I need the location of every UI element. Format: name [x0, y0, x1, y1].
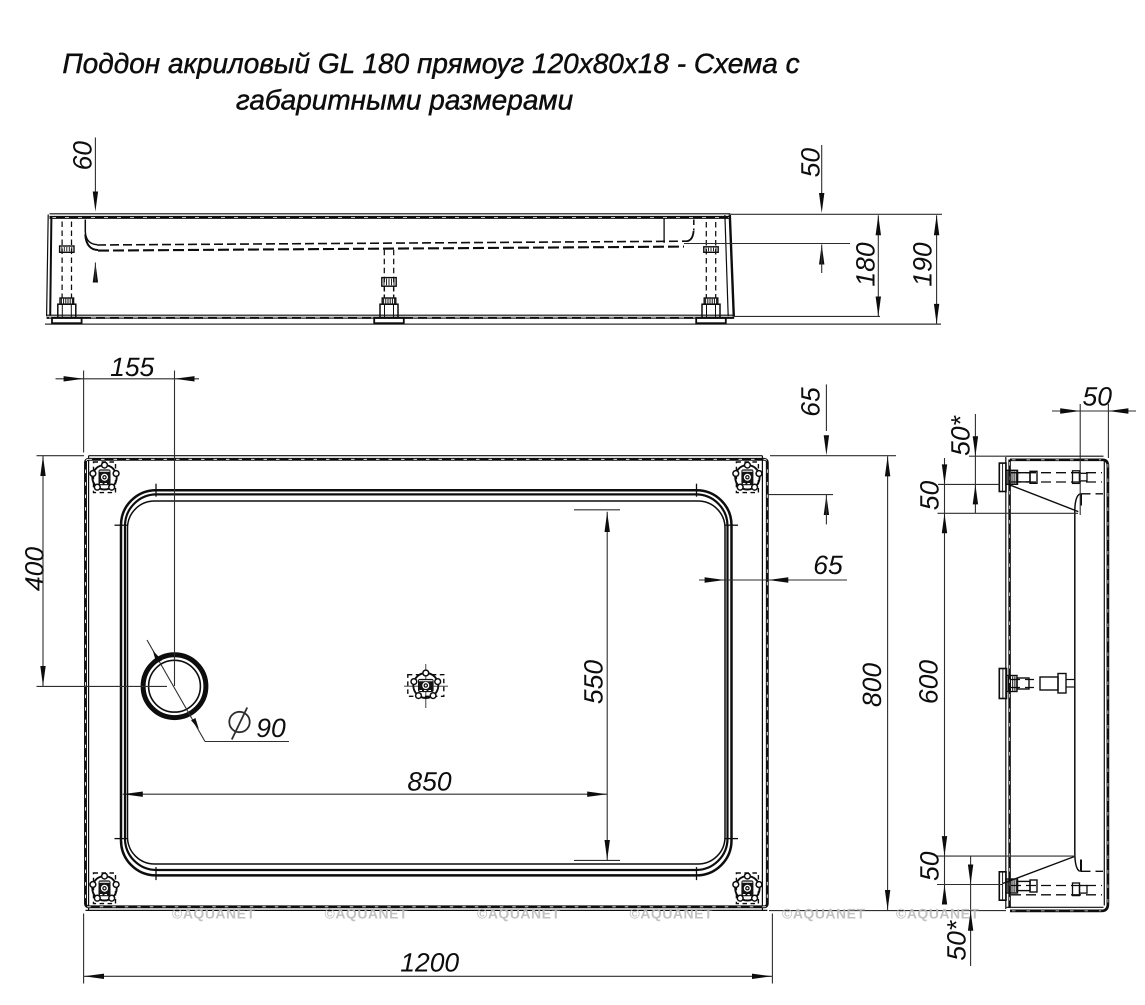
svg-text:Поддон акриловый GL 180 прямо: Поддон акриловый GL 180 прямоуг 120х80х1… — [62, 48, 799, 79]
svg-text:50: 50 — [796, 148, 826, 178]
svg-text:50*: 50* — [942, 919, 972, 960]
svg-text:550: 550 — [579, 660, 609, 704]
svg-text:65: 65 — [813, 550, 843, 580]
svg-text:1200: 1200 — [400, 948, 459, 978]
svg-text:габаритными размерами: габаритными размерами — [236, 85, 574, 116]
svg-text:190: 190 — [908, 242, 938, 286]
svg-text:©AQUANET: ©AQUANET — [896, 906, 980, 922]
svg-text:400: 400 — [20, 547, 50, 591]
svg-text:©AQUANET: ©AQUANET — [325, 906, 409, 922]
svg-text:©AQUANET: ©AQUANET — [630, 906, 714, 922]
svg-text:155: 155 — [110, 352, 154, 382]
svg-text:©AQUANET: ©AQUANET — [782, 906, 866, 922]
svg-text:©AQUANET: ©AQUANET — [477, 906, 561, 922]
svg-text:65: 65 — [796, 387, 826, 417]
svg-text:800: 800 — [857, 663, 887, 707]
svg-text:180: 180 — [851, 242, 881, 286]
svg-text:90: 90 — [256, 713, 286, 743]
svg-text:600: 600 — [914, 660, 944, 704]
svg-text:60: 60 — [68, 141, 98, 171]
svg-text:©AQUANET: ©AQUANET — [172, 906, 256, 922]
svg-text:50: 50 — [1083, 381, 1113, 411]
svg-text:50: 50 — [915, 481, 945, 511]
svg-text:850: 850 — [407, 767, 451, 797]
svg-text:50*: 50* — [946, 414, 976, 455]
svg-text:50: 50 — [915, 851, 945, 881]
